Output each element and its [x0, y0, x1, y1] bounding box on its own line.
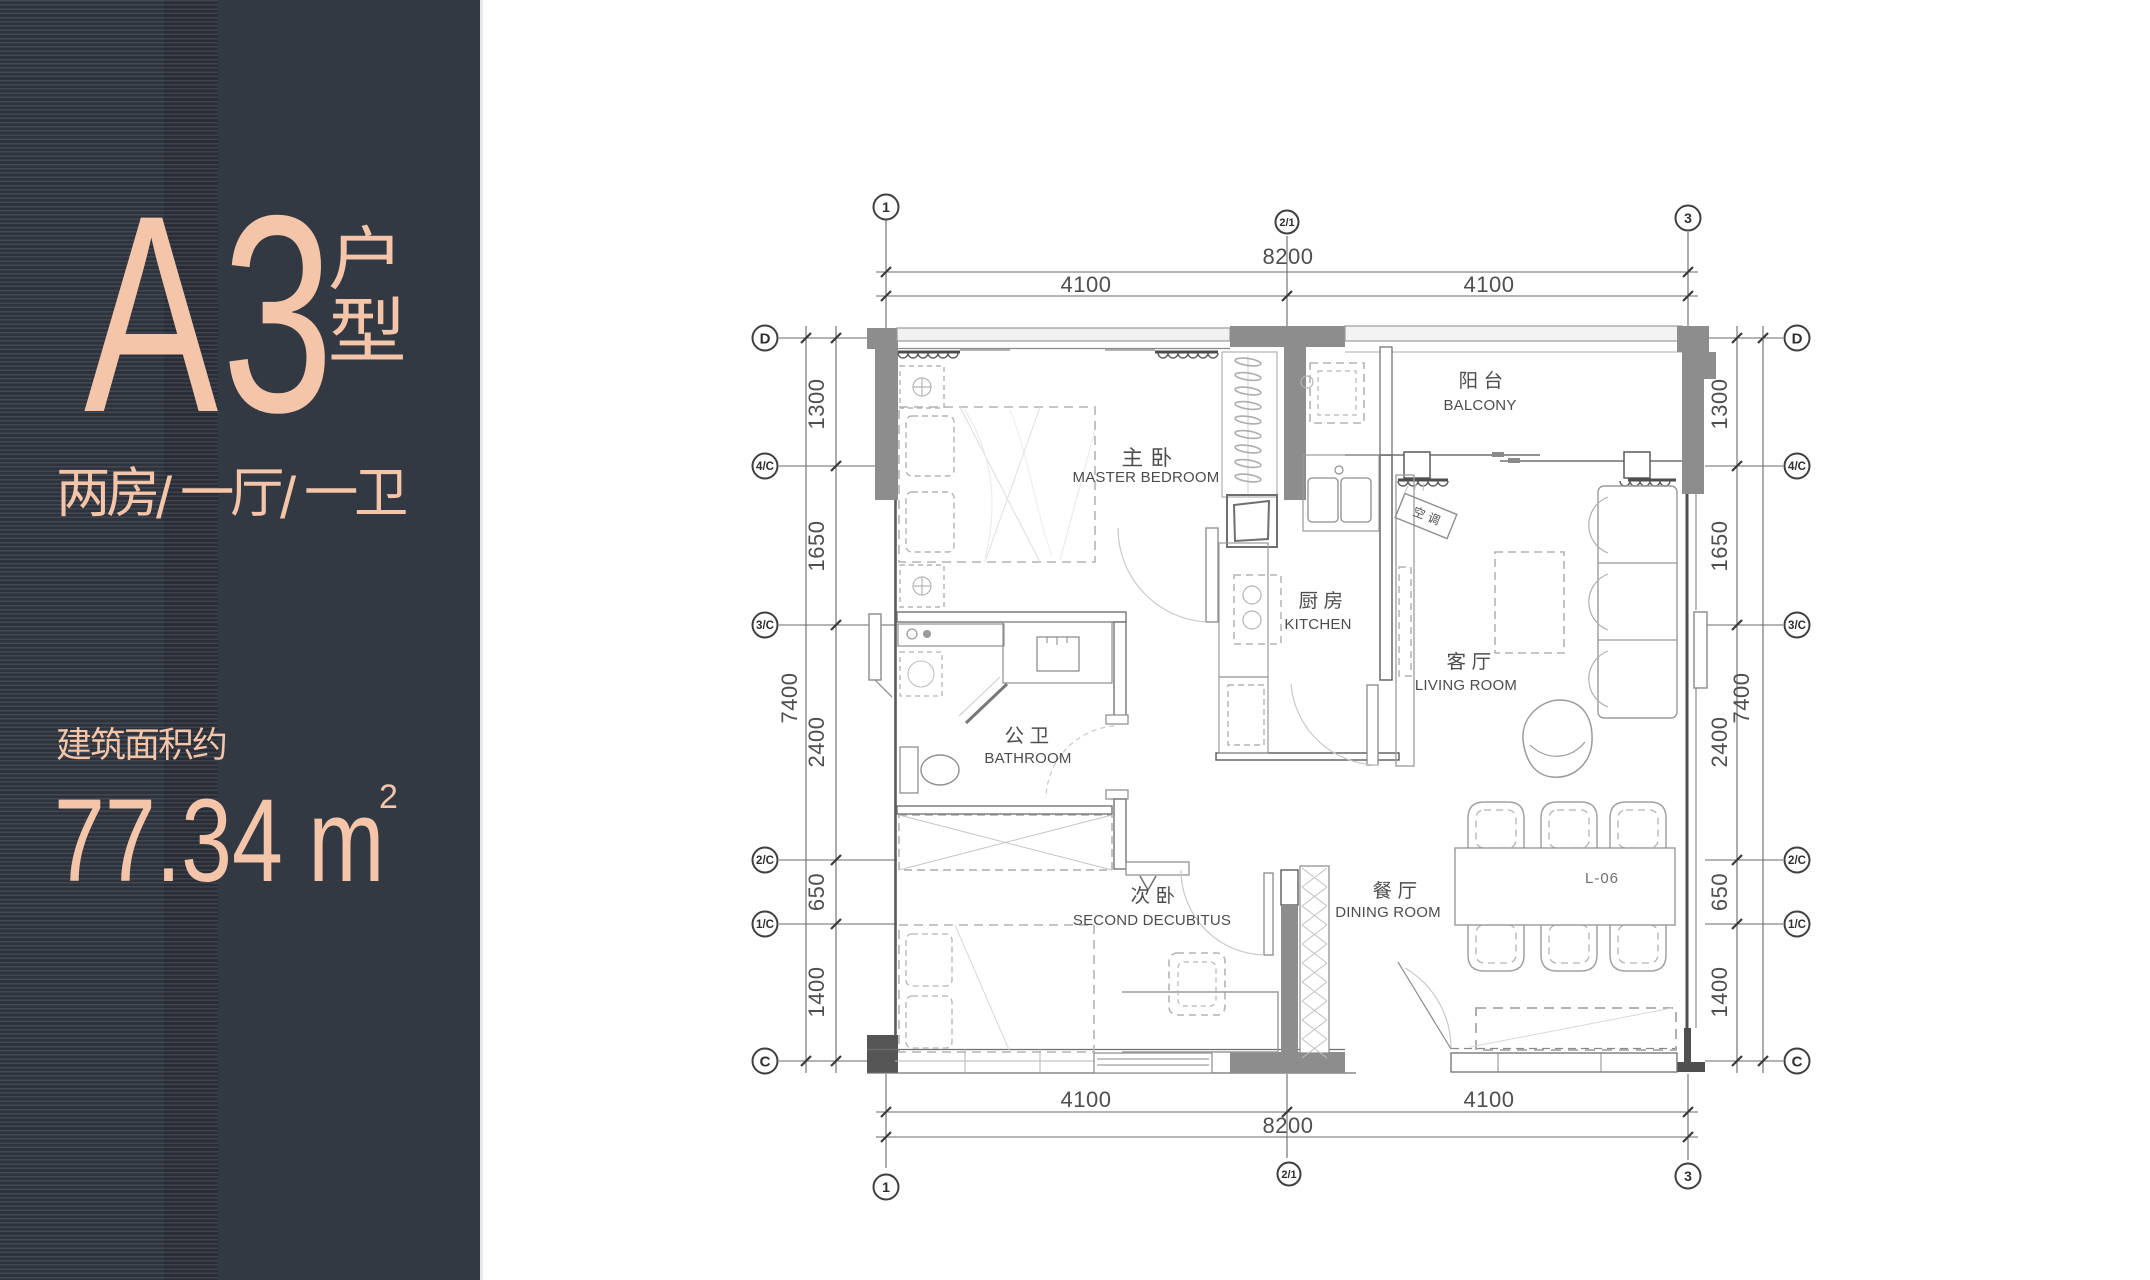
- svg-text:LIVING ROOM: LIVING ROOM: [1415, 677, 1517, 694]
- svg-text:7400: 7400: [1729, 673, 1754, 724]
- svg-text:1300: 1300: [1707, 379, 1732, 430]
- svg-text:8200: 8200: [1263, 1113, 1314, 1138]
- svg-text:L-06: L-06: [1585, 870, 1619, 887]
- svg-text:2/C: 2/C: [756, 855, 774, 867]
- svg-text:2: 2: [379, 778, 398, 816]
- svg-text:1: 1: [882, 199, 890, 215]
- svg-text:3/C: 3/C: [1788, 620, 1806, 632]
- svg-text:1650: 1650: [804, 521, 829, 572]
- svg-text:BATHROOM: BATHROOM: [984, 750, 1071, 767]
- svg-text:2400: 2400: [804, 717, 829, 768]
- svg-text:77.34 m: 77.34 m: [54, 775, 384, 907]
- svg-text:C: C: [760, 1053, 771, 1070]
- svg-text:/: /: [156, 466, 173, 531]
- svg-text:D: D: [1792, 330, 1803, 347]
- svg-text:4/C: 4/C: [756, 461, 774, 473]
- svg-text:1/C: 1/C: [1788, 919, 1806, 931]
- svg-text:A3: A3: [84, 157, 337, 471]
- svg-text:3: 3: [1684, 210, 1692, 226]
- svg-text:/: /: [280, 466, 297, 531]
- svg-text:1400: 1400: [804, 967, 829, 1018]
- svg-text:1650: 1650: [1707, 521, 1732, 572]
- svg-text:KITCHEN: KITCHEN: [1284, 616, 1351, 633]
- svg-text:1: 1: [882, 1179, 890, 1195]
- svg-text:2/1: 2/1: [1279, 217, 1294, 229]
- svg-text:650: 650: [804, 873, 829, 911]
- svg-text:D: D: [760, 330, 771, 347]
- svg-text:1/C: 1/C: [756, 919, 774, 931]
- svg-text:C: C: [1792, 1053, 1803, 1070]
- svg-text:1300: 1300: [804, 379, 829, 430]
- svg-text:3: 3: [1684, 1168, 1692, 1184]
- svg-text:4100: 4100: [1464, 1087, 1515, 1112]
- svg-text:4100: 4100: [1061, 272, 1112, 297]
- svg-text:7400: 7400: [777, 673, 802, 724]
- svg-text:2/C: 2/C: [1788, 855, 1806, 867]
- svg-text:4/C: 4/C: [1788, 461, 1806, 473]
- svg-text:2/1: 2/1: [1281, 1169, 1296, 1181]
- svg-text:3/C: 3/C: [756, 620, 774, 632]
- svg-text:1400: 1400: [1707, 967, 1732, 1018]
- svg-text:MASTER BEDROOM: MASTER BEDROOM: [1073, 469, 1220, 486]
- svg-text:4100: 4100: [1061, 1087, 1112, 1112]
- svg-text:DINING ROOM: DINING ROOM: [1335, 904, 1441, 921]
- svg-text:SECOND DECUBITUS: SECOND DECUBITUS: [1073, 912, 1231, 929]
- svg-text:BALCONY: BALCONY: [1443, 397, 1516, 414]
- svg-text:8200: 8200: [1263, 244, 1314, 269]
- svg-text:4100: 4100: [1464, 272, 1515, 297]
- svg-text:650: 650: [1707, 873, 1732, 911]
